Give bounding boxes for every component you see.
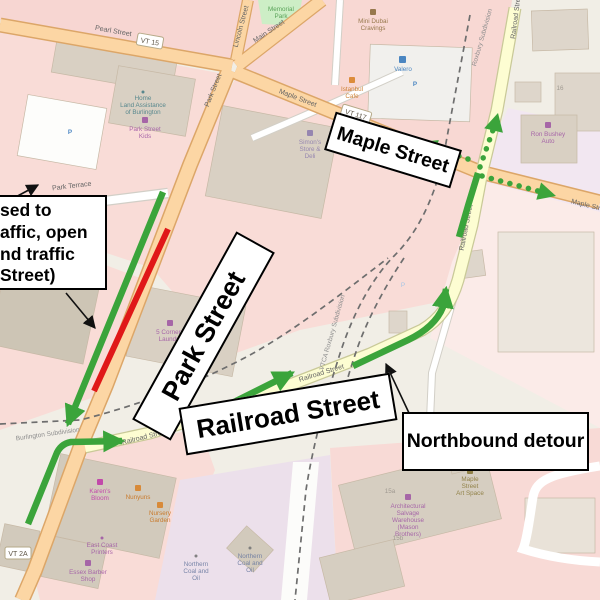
barber-icon [85,560,91,566]
building [17,95,107,170]
industry-icon [249,547,252,550]
poi-label: Northern [184,561,209,568]
car-shop-icon [545,122,551,128]
closure-note-line: Street) [0,265,88,287]
poi-label: Bloom [91,495,109,502]
laundry-icon [167,320,173,326]
shop-icon [101,537,104,540]
poi-label: Nursery [149,510,172,517]
poi-label: Kids [139,133,151,140]
poi-label: Coal and [237,560,263,567]
parking-icon: P [413,81,417,88]
shop-icon [405,494,411,500]
clothes-icon [97,479,103,485]
poi-label: Cravings [361,25,386,32]
closure-note-text: sed to affic, open nd traffic Street) [0,200,88,287]
restaurant-icon [370,9,376,15]
poi-label: (Mason [398,524,419,531]
poi-label: Printers [91,549,113,556]
poi-label: Nunyuns [126,494,151,501]
closure-note-callout: sed to affic, open nd traffic Street) [0,195,107,290]
parking-icon: P [68,129,72,136]
building [531,9,588,51]
housenumber: 16 [556,85,564,92]
poi-label: East Coast [87,542,118,549]
shield-text: VT 2A [8,551,28,558]
housenumber: 15b [393,535,404,542]
poi-label: Salvage [397,510,420,517]
poi-label: of Burlington [125,109,161,116]
poi-label: Mini Dubai [358,18,388,25]
poi-label: Architectural [391,503,426,510]
poi-label: Northern [238,553,263,560]
northbound-detour-callout-text: Northbound detour [407,430,585,453]
poi-label: Store & [300,146,322,153]
poi-label: Shop [81,576,96,583]
poi-label: Simon's [299,139,321,146]
building [515,82,541,102]
poi-label: Karen's [89,488,110,495]
poi-label: Warehouse [392,517,424,524]
closure-note-line: nd traffic [0,244,88,266]
route-shield-vt2a: VT 2A [5,547,31,559]
building [389,311,407,333]
poi-label: Oil [192,575,200,582]
poi-label: Auto [542,138,555,145]
poi-label: Oil [246,567,254,574]
closure-note-line: sed to [0,200,88,222]
poi-label: Coal and [183,568,209,575]
poi-label: Park [275,13,289,20]
poi-label: Garden [149,517,171,524]
housenumber: 15a [385,488,396,495]
poi-label: Land Assistance [120,102,166,109]
closure-note-line: affic, open [0,222,88,244]
poi-label: Park Street [129,126,161,133]
poi-label: Maple [461,476,479,483]
industry-icon [195,555,198,558]
poi-label: Ron Bushey [531,131,566,138]
shop-icon [142,117,148,123]
map-canvas[interactable]: Pearl Street Lincoln Street Main Street … [0,0,600,600]
northbound-detour-callout: Northbound detour [402,412,589,471]
poi-label: Memorial [268,6,294,13]
poi-label: Art Space [456,490,484,497]
fuel-icon [399,56,406,63]
poi-label: Istanbul [341,86,363,93]
poi-label: Cafe [345,93,359,100]
restaurant-icon [349,77,355,83]
office-icon [142,91,145,94]
shop-icon [307,130,313,136]
poi-label: Home [135,95,152,102]
poi-label: Essex Barber [69,569,107,576]
poi-label: Deli [305,153,316,160]
poi-label: Street [462,483,479,490]
restaurant-icon [157,502,163,508]
restaurant-icon [135,485,141,491]
poi-label: Valero [394,66,412,73]
parking-icon: P [401,282,405,289]
building [498,232,594,352]
detour-map[interactable]: Pearl Street Lincoln Street Main Street … [0,0,600,600]
